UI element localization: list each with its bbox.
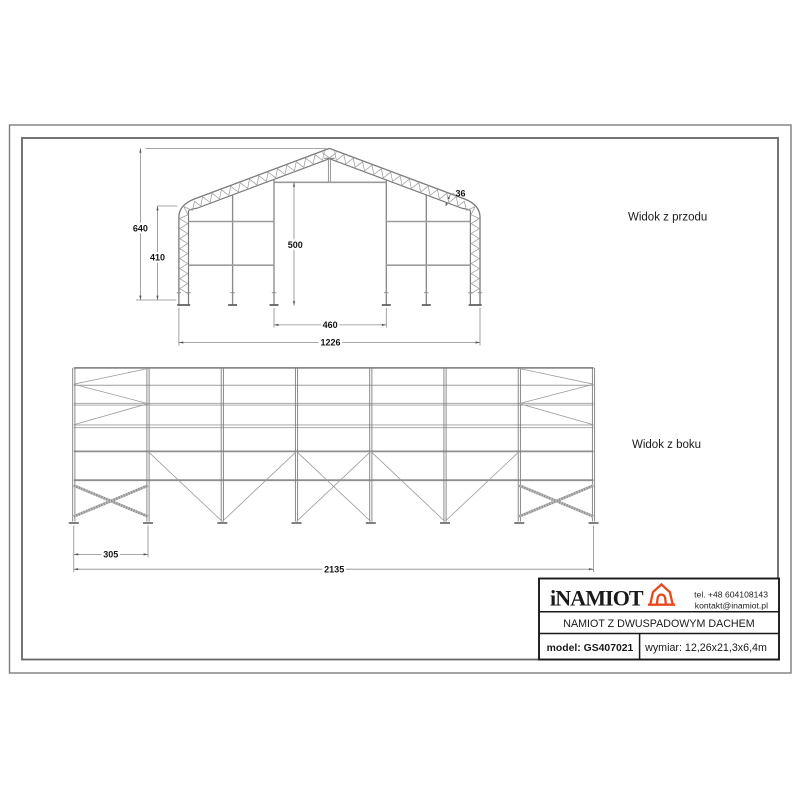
svg-text:410: 410 bbox=[150, 253, 165, 263]
svg-text:640: 640 bbox=[133, 223, 148, 233]
svg-text:kontakt@inamiot.pl: kontakt@inamiot.pl bbox=[695, 601, 768, 611]
svg-text:1226: 1226 bbox=[320, 338, 340, 348]
svg-text:305: 305 bbox=[103, 550, 118, 560]
svg-text:36: 36 bbox=[456, 189, 466, 199]
svg-text:2135: 2135 bbox=[324, 564, 344, 574]
svg-text:iNAMIOT: iNAMIOT bbox=[550, 586, 644, 611]
svg-text:NAMIOT Z DWUSPADOWYM DACHEM: NAMIOT Z DWUSPADOWYM DACHEM bbox=[563, 618, 754, 630]
svg-text:Widok z boku: Widok z boku bbox=[632, 439, 701, 451]
svg-text:wymiar: 12,26x21,3x6,4m: wymiar: 12,26x21,3x6,4m bbox=[644, 642, 767, 654]
svg-text:Widok z przodu: Widok z przodu bbox=[628, 211, 707, 223]
svg-text:model: GS407021: model: GS407021 bbox=[547, 643, 634, 654]
svg-text:460: 460 bbox=[323, 320, 338, 330]
svg-text:500: 500 bbox=[288, 240, 303, 250]
svg-text:tel. +48 604108143: tel. +48 604108143 bbox=[694, 590, 768, 600]
